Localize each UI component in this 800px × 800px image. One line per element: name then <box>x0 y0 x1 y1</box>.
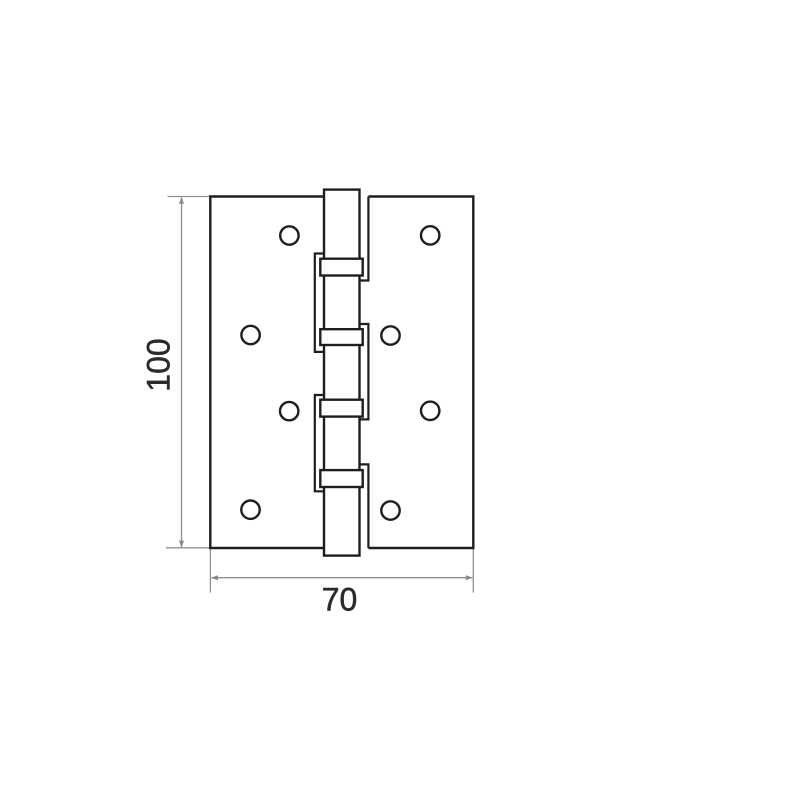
svg-text:70: 70 <box>322 582 358 618</box>
svg-text:100: 100 <box>141 338 177 391</box>
